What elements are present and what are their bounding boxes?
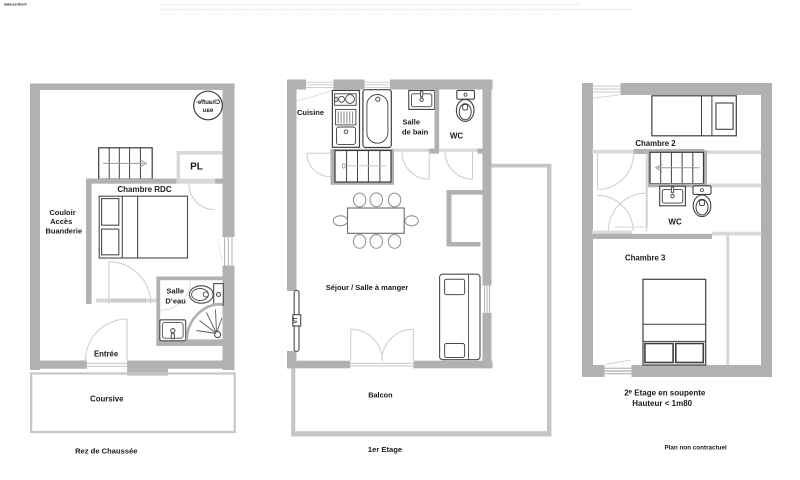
svg-text:Rez de Chaussée: Rez de Chaussée <box>75 447 137 456</box>
svg-text:WC: WC <box>450 132 464 141</box>
svg-text:Plan non contractuel: Plan non contractuel <box>664 444 727 451</box>
svg-text:www.ecritsv.fr: www.ecritsv.fr <box>3 3 27 7</box>
svg-text:Séjour / Salle à manger: Séjour / Salle à manger <box>326 283 409 292</box>
svg-text:Salle: Salle <box>403 117 421 126</box>
svg-text:Coursive: Coursive <box>90 395 124 404</box>
svg-text:D’eau: D’eau <box>165 297 186 306</box>
svg-text:Chambre RDC: Chambre RDC <box>117 185 171 194</box>
svg-text:Cuisine: Cuisine <box>297 108 324 117</box>
svg-text:Buanderie: Buanderie <box>45 226 82 235</box>
svg-text:PL: PL <box>190 162 203 173</box>
svg-text:de bain: de bain <box>402 128 429 137</box>
svg-text:Accès: Accès <box>50 217 72 226</box>
svg-text:Couloir: Couloir <box>49 208 75 217</box>
svg-text:Chambre 2: Chambre 2 <box>635 139 676 148</box>
svg-text:Balcon: Balcon <box>368 391 392 400</box>
svg-text:eau: eau <box>202 108 213 114</box>
svg-text:Entrée: Entrée <box>94 350 119 359</box>
svg-text:Salle: Salle <box>167 287 185 296</box>
svg-text:Hauteur < 1m80: Hauteur < 1m80 <box>632 399 692 408</box>
svg-text:2e Etage en soupente: 2e Etage en soupente <box>624 389 706 398</box>
svg-text:Chauffe-: Chauffe- <box>196 100 220 106</box>
svg-text:Chambre 3: Chambre 3 <box>625 253 666 262</box>
svg-text:VT: VT <box>293 317 299 323</box>
svg-text:WC: WC <box>668 218 682 227</box>
svg-text:1er Etage: 1er Etage <box>368 445 402 454</box>
